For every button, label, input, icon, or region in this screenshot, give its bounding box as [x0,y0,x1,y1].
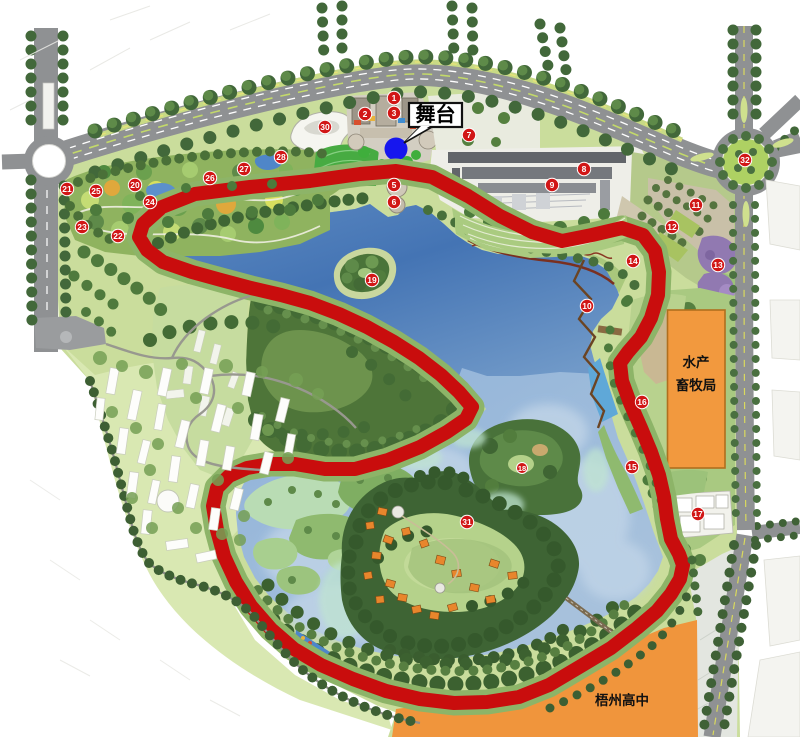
svg-text:21: 21 [62,184,72,194]
svg-text:12: 12 [667,222,677,232]
svg-text:11: 11 [692,200,701,210]
svg-text:9: 9 [550,180,555,190]
svg-text:19: 19 [367,275,377,285]
svg-text:1: 1 [392,93,397,103]
svg-text:梧州高中: 梧州高中 [595,692,649,708]
svg-text:14: 14 [628,256,638,266]
svg-text:水产: 水产 [683,354,710,370]
svg-text:10: 10 [582,301,592,311]
svg-text:27: 27 [239,164,249,174]
svg-text:23: 23 [77,222,87,232]
svg-text:5: 5 [392,180,397,190]
svg-text:7: 7 [467,130,472,140]
svg-text:舞台: 舞台 [416,102,456,126]
svg-text:26: 26 [205,173,215,183]
svg-text:32: 32 [740,155,750,165]
svg-text:13: 13 [713,260,723,270]
svg-text:6: 6 [392,197,397,207]
svg-text:22: 22 [113,231,123,241]
svg-text:3: 3 [392,108,397,118]
svg-text:24: 24 [145,197,155,207]
svg-text:30: 30 [320,122,330,132]
svg-text:31: 31 [462,517,472,527]
svg-text:8: 8 [582,164,587,174]
svg-text:15: 15 [627,462,637,472]
svg-text:20: 20 [130,180,140,190]
svg-text:18: 18 [518,464,526,473]
svg-text:28: 28 [276,152,286,162]
svg-text:16: 16 [637,397,647,407]
svg-text:17: 17 [693,509,703,519]
svg-text:25: 25 [91,186,101,196]
svg-text:2: 2 [363,109,368,119]
svg-text:畜牧局: 畜牧局 [676,377,717,393]
